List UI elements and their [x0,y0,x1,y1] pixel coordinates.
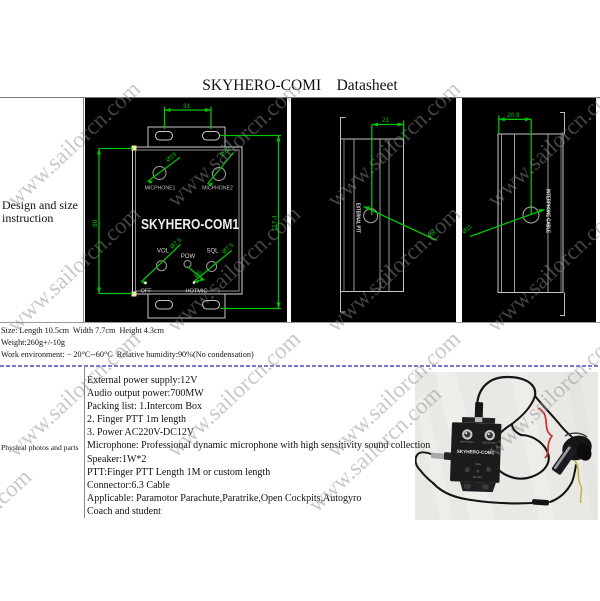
svg-text:31: 31 [183,103,191,110]
svg-text:EXTERNAL PTT: EXTERNAL PTT [355,203,361,233]
svg-text:21: 21 [382,117,390,124]
svg-text:MICPHONE2: MICPHONE2 [202,186,233,192]
svg-text:POW: POW [181,254,196,260]
svg-text:SQL: SQL [206,249,219,255]
svg-text:SKYHERO-COM1: SKYHERO-COM1 [141,216,239,233]
svg-text:INTERPHONE CABLE: INTERPHONE CABLE [545,189,551,234]
svg-text:20.9: 20.9 [507,112,520,119]
svg-text:117.4: 117.4 [272,215,279,231]
svg-text:VOL: VOL [157,249,170,255]
svg-text:90: 90 [92,219,99,227]
svg-text:MICPHONE1: MICPHONE1 [145,186,176,192]
